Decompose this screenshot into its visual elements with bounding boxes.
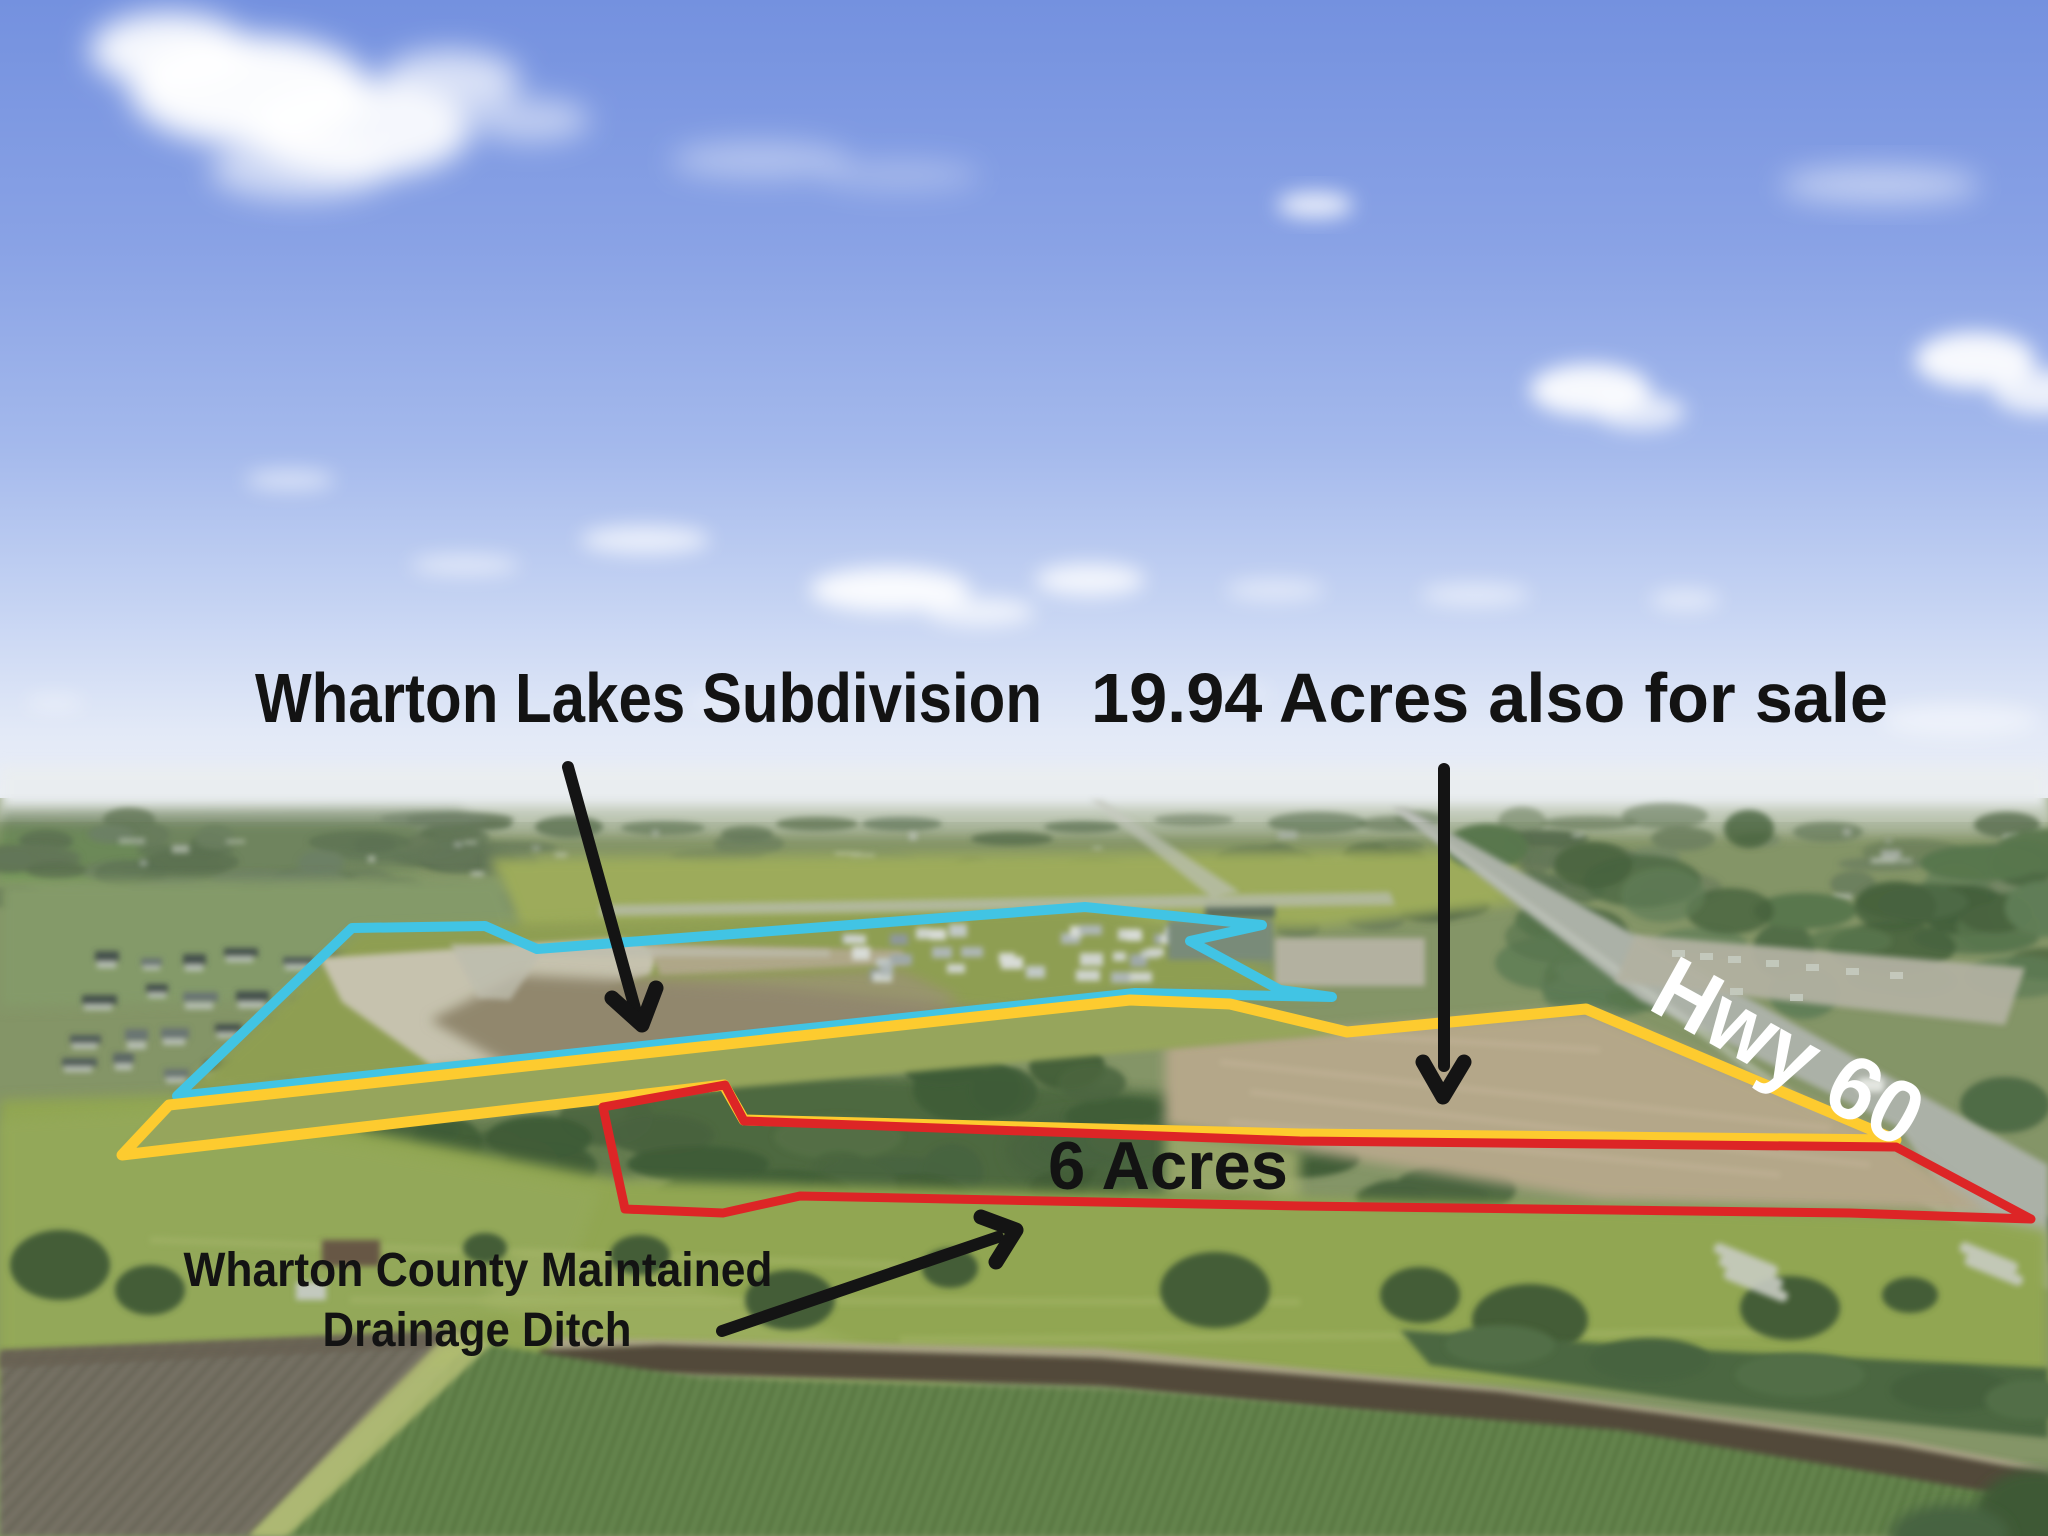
svg-text:19.94 Acres also for sale: 19.94 Acres also for sale: [1091, 659, 1888, 737]
svg-text:Wharton County Maintained: Wharton County Maintained: [184, 1244, 773, 1297]
svg-text:6 Acres: 6 Acres: [1048, 1128, 1288, 1204]
svg-text:Drainage Ditch: Drainage Ditch: [323, 1304, 632, 1357]
svg-text:Wharton Lakes Subdivision: Wharton Lakes Subdivision: [255, 659, 1042, 737]
